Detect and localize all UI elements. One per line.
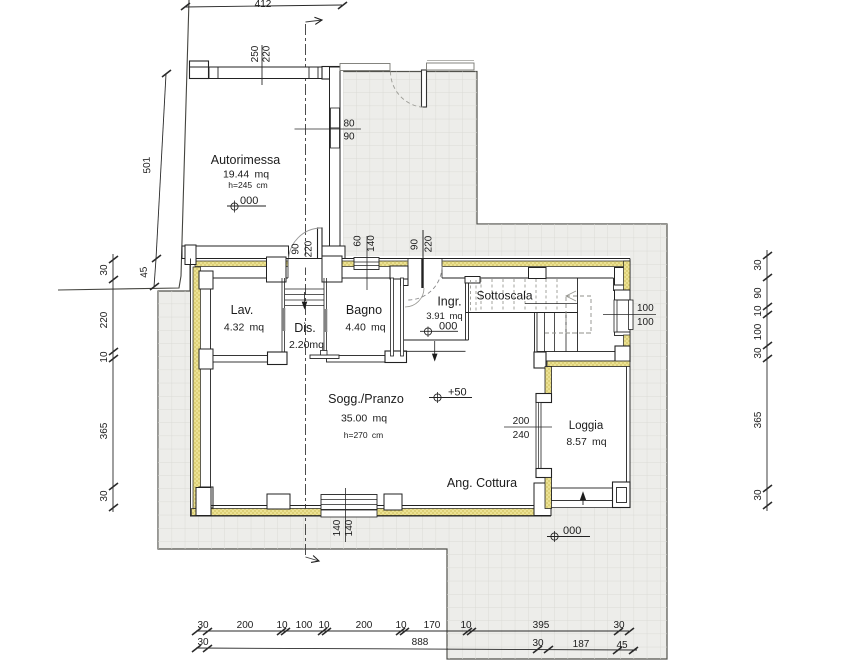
svg-text:100: 100	[296, 620, 313, 631]
svg-text:2.20mq: 2.20mq	[289, 339, 324, 351]
svg-text:Sottoscala: Sottoscala	[476, 289, 532, 303]
svg-text:250: 250	[250, 45, 261, 62]
svg-text:h=245 cm: h=245 cm	[228, 180, 267, 190]
svg-text:30: 30	[197, 620, 209, 631]
svg-text:395: 395	[533, 620, 550, 631]
svg-text:10: 10	[99, 351, 110, 363]
svg-text:220: 220	[262, 45, 273, 62]
svg-text:10: 10	[460, 620, 472, 631]
svg-text:4.40 mq: 4.40 mq	[345, 322, 385, 334]
svg-text:220: 220	[304, 240, 315, 257]
svg-text:Lav.: Lav.	[231, 303, 254, 317]
svg-text:501: 501	[142, 156, 154, 174]
svg-text:200: 200	[356, 620, 373, 631]
svg-text:h=270 cm: h=270 cm	[344, 430, 383, 440]
svg-text:Dis.: Dis.	[294, 321, 316, 335]
svg-text:30: 30	[99, 264, 110, 276]
svg-text:220: 220	[99, 311, 110, 328]
svg-text:+50: +50	[448, 387, 467, 399]
svg-text:45: 45	[139, 266, 151, 278]
svg-text:Sogg./Pranzo: Sogg./Pranzo	[328, 392, 404, 406]
svg-text:30: 30	[753, 259, 764, 271]
svg-text:Loggia: Loggia	[569, 420, 604, 432]
svg-text:80: 80	[344, 119, 356, 130]
svg-text:30: 30	[197, 637, 209, 648]
svg-text:140: 140	[344, 519, 355, 536]
svg-text:000: 000	[439, 321, 457, 333]
svg-text:90: 90	[410, 239, 421, 251]
svg-text:200: 200	[513, 416, 530, 427]
svg-text:Bagno: Bagno	[346, 303, 382, 317]
svg-text:200: 200	[237, 620, 254, 631]
svg-text:412: 412	[255, 0, 272, 10]
svg-text:365: 365	[99, 422, 110, 439]
svg-text:888: 888	[412, 637, 429, 648]
svg-text:10: 10	[395, 620, 407, 631]
svg-text:100: 100	[637, 317, 654, 328]
svg-text:187: 187	[573, 639, 590, 650]
svg-text:10: 10	[276, 620, 288, 631]
svg-text:90: 90	[344, 132, 356, 143]
svg-text:35.00 mq: 35.00 mq	[341, 413, 387, 425]
svg-text:000: 000	[563, 525, 581, 537]
svg-text:365: 365	[753, 411, 764, 428]
svg-text:8.57 mq: 8.57 mq	[566, 436, 606, 448]
svg-text:19.44 mq: 19.44 mq	[223, 169, 269, 181]
svg-text:60: 60	[353, 235, 364, 247]
svg-text:30: 30	[753, 347, 764, 359]
svg-text:90: 90	[291, 243, 302, 255]
svg-text:000: 000	[240, 195, 258, 207]
svg-text:4.32 mq: 4.32 mq	[224, 322, 264, 334]
svg-text:10: 10	[318, 620, 330, 631]
svg-text:30: 30	[613, 620, 625, 631]
svg-text:Ang. Cottura: Ang. Cottura	[447, 476, 517, 490]
svg-text:30: 30	[753, 489, 764, 501]
svg-text:100: 100	[753, 323, 764, 340]
svg-text:30: 30	[99, 490, 110, 502]
svg-text:100: 100	[637, 303, 654, 314]
svg-text:140: 140	[366, 235, 377, 252]
svg-text:170: 170	[424, 620, 441, 631]
svg-text:Ingr.: Ingr.	[437, 295, 461, 309]
svg-text:30: 30	[532, 638, 544, 649]
svg-text:90: 90	[753, 287, 764, 299]
svg-text:45: 45	[616, 640, 628, 651]
svg-text:140: 140	[332, 519, 343, 536]
svg-text:Autorimessa: Autorimessa	[211, 153, 281, 167]
svg-text:10: 10	[753, 305, 764, 317]
svg-text:240: 240	[513, 430, 530, 441]
svg-text:220: 220	[424, 235, 435, 252]
